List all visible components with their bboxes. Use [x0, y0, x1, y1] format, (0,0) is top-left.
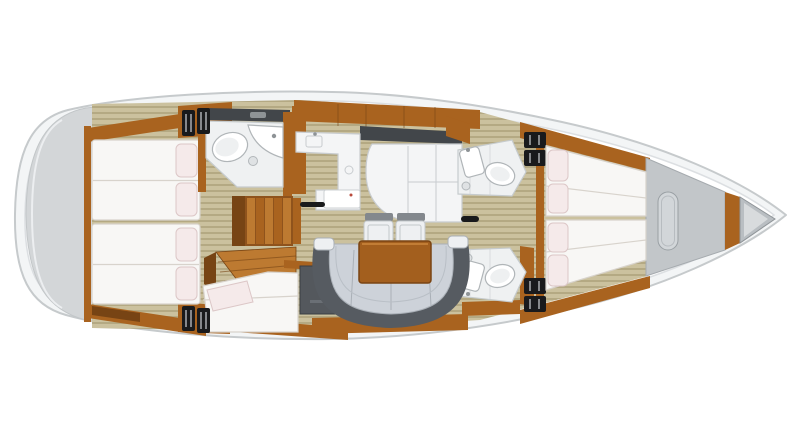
vent-hatch: [182, 306, 195, 331]
shower-drain: [462, 182, 470, 190]
salon-wall-panel: [324, 190, 360, 208]
aft-head-right-column: [283, 112, 292, 196]
sofa-arm-pad: [314, 238, 334, 250]
stair-side-left: [232, 196, 245, 246]
pillow: [548, 150, 568, 181]
stair-side-right: [293, 198, 301, 244]
door-handle: [300, 202, 325, 207]
stair-step: [256, 198, 264, 244]
vent-hatch: [524, 296, 546, 312]
aft-head-wall: [206, 108, 290, 122]
pillow: [176, 228, 197, 261]
faucet: [272, 134, 276, 138]
wall-hardware: [250, 112, 266, 118]
pillow: [176, 267, 197, 300]
chair-back: [365, 213, 393, 221]
shower-drain: [249, 157, 258, 166]
aft-cabin-port: [92, 140, 200, 220]
panel-indicator: [350, 194, 353, 197]
vent-hatch: [524, 150, 546, 166]
fwd-head-port: [458, 140, 526, 196]
pillow: [176, 144, 197, 177]
vent-hatch: [524, 278, 546, 294]
stair-step: [283, 198, 291, 244]
sofa-arm-pad: [448, 236, 468, 248]
yacht-floor-plan: [0, 0, 800, 446]
faucet: [466, 292, 470, 296]
pillow: [548, 223, 568, 252]
yacht-floor-plan-page: [0, 0, 800, 446]
faucet: [466, 148, 470, 152]
stair-step: [274, 198, 282, 244]
aft-cabin-starboard: [92, 224, 200, 304]
pillow: [176, 183, 197, 216]
galley-faucet: [313, 132, 317, 136]
companionway: [232, 196, 301, 246]
stair-step: [247, 198, 255, 244]
vent-hatch: [197, 308, 210, 333]
bow-bulkhead: [725, 192, 740, 250]
stair-step: [265, 198, 273, 244]
salon-table: [359, 241, 431, 283]
bed-headboard-panel: [84, 126, 91, 322]
chair-back: [397, 213, 425, 221]
pillow: [548, 255, 568, 286]
vent-hatch: [197, 108, 210, 134]
vent-hatch: [182, 110, 195, 136]
pillow: [548, 184, 568, 213]
vent-hatch: [524, 132, 546, 148]
door-handle: [461, 216, 479, 222]
